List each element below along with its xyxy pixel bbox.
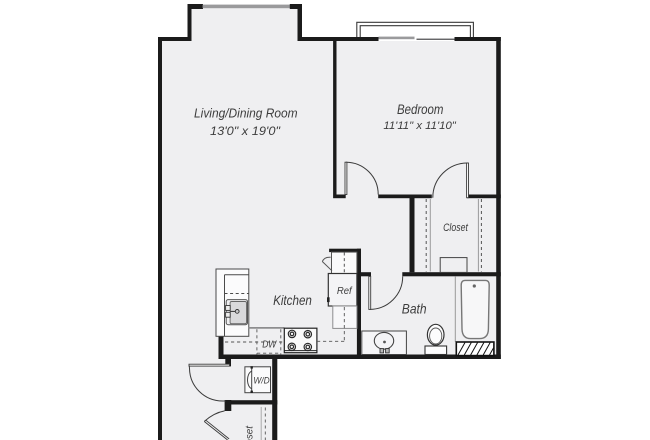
svg-text:DW: DW (262, 339, 277, 350)
svg-text:Kitchen: Kitchen (273, 293, 312, 308)
svg-text:Closet: Closet (245, 425, 256, 440)
svg-text:Bedroom: Bedroom (397, 102, 444, 117)
svg-text:Ref: Ref (337, 286, 353, 297)
svg-text:Closet: Closet (443, 222, 468, 234)
svg-text:Living/Dining Room: Living/Dining Room (194, 106, 298, 121)
svg-text:Bath: Bath (402, 302, 427, 317)
svg-text:W/D: W/D (253, 376, 270, 386)
svg-text:11'11" x 11'10": 11'11" x 11'10" (383, 120, 456, 132)
svg-text:13'0" x 19'0": 13'0" x 19'0" (210, 124, 281, 138)
